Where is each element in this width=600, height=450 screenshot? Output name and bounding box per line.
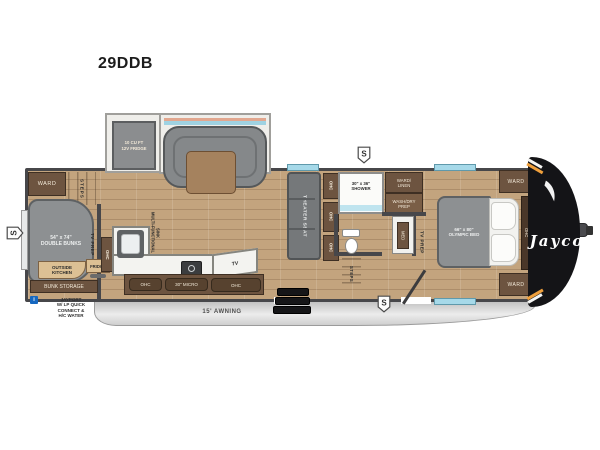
entry-step [277,288,309,296]
washer-dryer-prep: WASH/DRY PREP [385,193,423,214]
toilet [345,238,358,254]
bath-wall-bottom [334,252,382,256]
jayport-icon: i [30,296,38,304]
toilet-tank [342,229,360,237]
ohc-cabinet-left: OHC [129,278,162,291]
tv-label: TV [214,250,256,277]
entry-step [275,297,310,305]
s-badge-bottom: S [377,295,391,313]
pillow [491,234,516,262]
s-badge-letter: S [361,150,367,159]
floorplan-canvas: 29DDB 15' AWNING 10 CU FT 12V FRIDGE WAR… [0,0,600,450]
bath-wall-left [334,214,338,256]
dinette-table [186,151,236,194]
bunk-storage: BUNK STORAGE [30,280,98,293]
s-badge-letter: S [381,299,387,308]
medicine-cabinet: MED [392,216,414,254]
bunkroom-tv-prep-label: TV PREP [86,224,99,264]
jayport-label: JAYPORT W/ LP QUICK CONNECT & H/C WATER [40,294,102,321]
outside-kitchen: OUTSIDE KITCHEN [38,261,86,279]
refrigerator: 10 CU FT 12V FRIDGE [112,121,156,170]
theater-seat: THEATER SEAT [287,172,321,260]
pillow [491,202,516,230]
living-window [287,164,319,171]
entry-step [273,306,311,314]
s-badge-letter: S [10,230,19,236]
ward-linen-cabinet: WARD/ LINEN [385,172,423,193]
microwave: 30" MICRO [165,278,208,291]
medicine-cabinet-label: MED [397,222,409,249]
kitchen-lower-cabinets: OHC 30" MICRO OHC [124,274,264,295]
multifunctional-sink-label: MULTI-FUNCTIONAL SINK [147,202,164,264]
awning-label: 15' AWNING [182,307,262,317]
olympic-bed: 66" x 80" OLYMPIC BED [437,196,491,268]
dinette-window [164,121,266,125]
bedroom-window-door [434,298,476,305]
bedroom-steps: STEPS [342,258,361,290]
hitch-pin-tip [586,226,593,235]
model-title: 29DDB [98,55,153,73]
rear-wardrobe: WARD [28,172,66,196]
bedroom-tv-prep-label: TV PREP [416,222,428,262]
outside-fridge-vent [90,274,106,278]
living-ohc-1: OHC [323,173,339,199]
shower-glass [340,205,382,211]
bedroom-window-offdoor [434,164,476,171]
s-badge-top: S [357,146,371,164]
brand-logo: Jayco [547,198,567,284]
s-badge-rear: S [6,226,24,240]
ohc-cabinet-right: OHC [211,278,261,292]
theater-seat-seam [289,198,315,200]
fridge-slideout: 10 CU FT 12V FRIDGE [105,113,161,173]
theater-seat-seam [289,228,315,230]
range-burner-icon [188,265,195,272]
rear-window [21,210,28,270]
bedroom-steps-label: STEPS [342,258,361,290]
kitchen-sink [121,234,140,254]
